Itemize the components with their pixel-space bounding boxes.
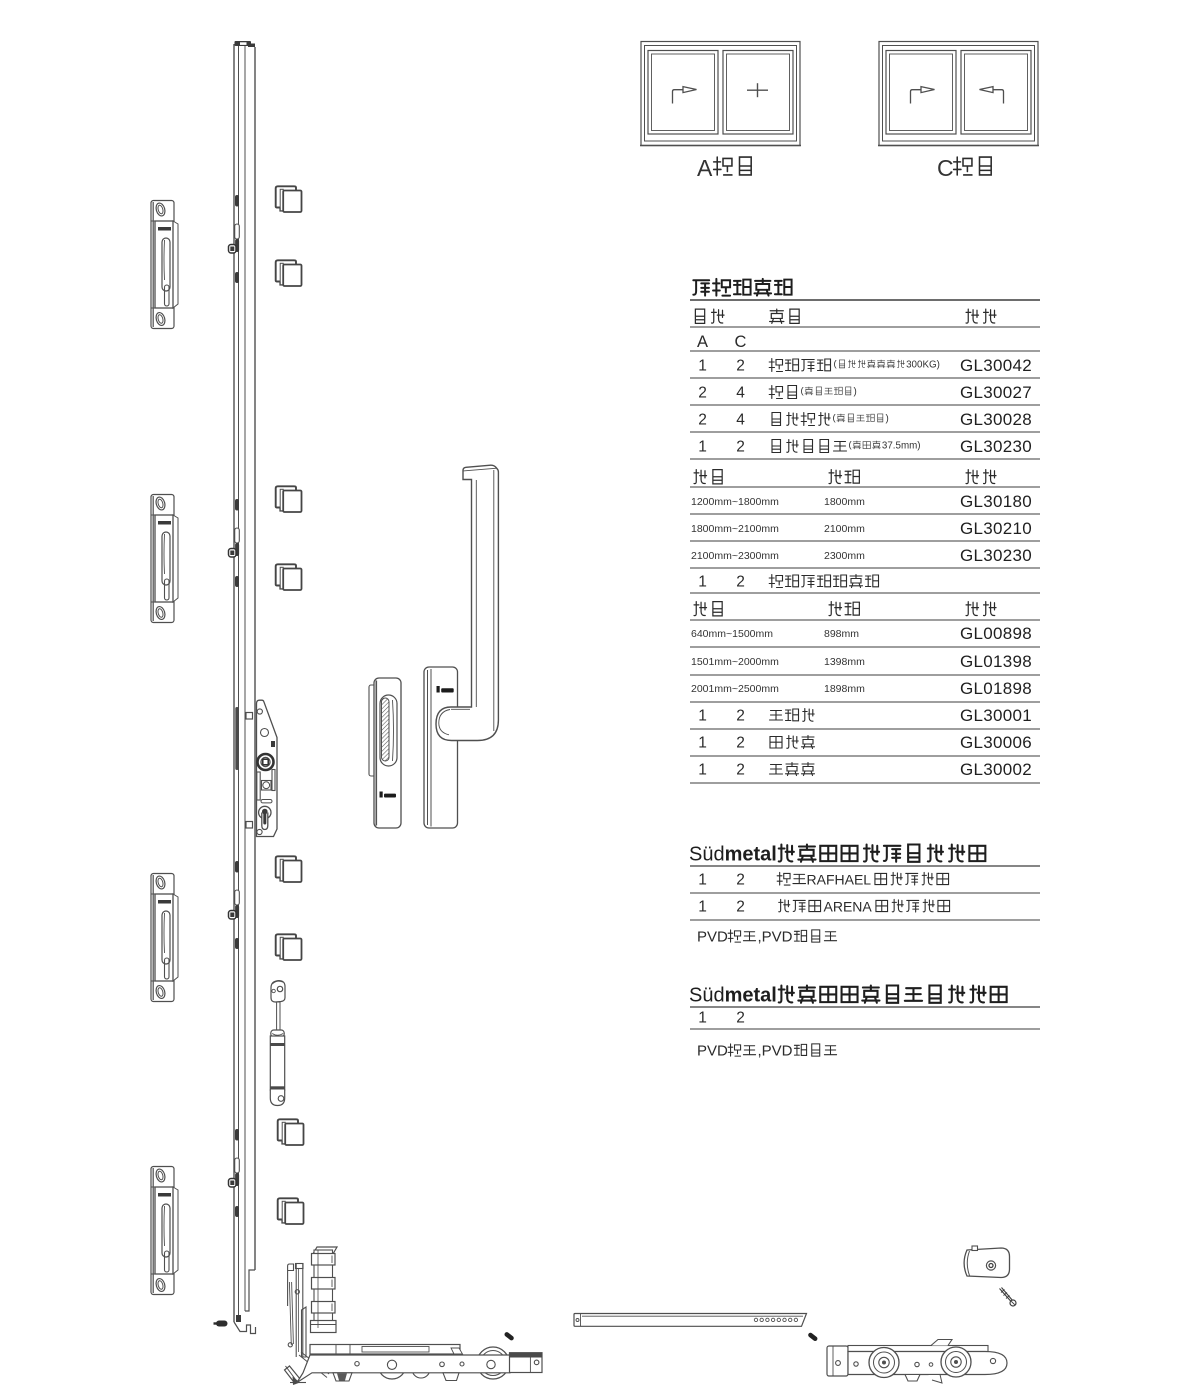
- svg-text:C: C: [937, 155, 954, 181]
- svg-text:1501mm~2000mm: 1501mm~2000mm: [691, 656, 779, 668]
- svg-text:C: C: [735, 333, 747, 351]
- svg-text:GL30230: GL30230: [960, 437, 1032, 456]
- svg-text:GL01898: GL01898: [960, 679, 1032, 698]
- svg-text:2: 2: [736, 1010, 745, 1027]
- svg-text:RAFHAEL: RAFHAEL: [807, 872, 872, 888]
- svg-text:GL01398: GL01398: [960, 652, 1032, 671]
- svg-text:2: 2: [698, 385, 707, 402]
- svg-text:2: 2: [736, 899, 745, 916]
- svg-text:2: 2: [736, 439, 745, 456]
- svg-text:1898mm: 1898mm: [824, 683, 865, 695]
- svg-text:2: 2: [736, 735, 745, 752]
- svg-text:GL30001: GL30001: [960, 706, 1032, 725]
- svg-text:GL30210: GL30210: [960, 519, 1032, 538]
- svg-text:Südmetal: Südmetal: [689, 844, 777, 866]
- svg-text:4: 4: [736, 412, 745, 429]
- svg-text:,PVD: ,PVD: [758, 929, 793, 946]
- svg-text:1398mm: 1398mm: [824, 656, 865, 668]
- svg-text:1: 1: [698, 899, 707, 916]
- svg-text:2100mm: 2100mm: [824, 523, 865, 535]
- svg-text:GL30042: GL30042: [960, 356, 1032, 375]
- svg-text:Südmetal: Südmetal: [689, 985, 777, 1007]
- svg-text:GL30230: GL30230: [960, 546, 1032, 565]
- svg-text:640mm~1500mm: 640mm~1500mm: [691, 628, 773, 640]
- svg-text:): ): [854, 387, 857, 398]
- svg-text:4: 4: [736, 385, 745, 402]
- svg-text:898mm: 898mm: [824, 628, 859, 640]
- svg-text:,PVD: ,PVD: [758, 1043, 793, 1060]
- svg-text:2: 2: [736, 574, 745, 591]
- svg-text:2: 2: [698, 412, 707, 429]
- svg-text:PVD: PVD: [697, 1043, 728, 1060]
- svg-text:A: A: [697, 333, 708, 351]
- svg-text:1800mm: 1800mm: [824, 496, 865, 508]
- svg-text:2: 2: [736, 762, 745, 779]
- svg-text:37.5mm): 37.5mm): [882, 441, 921, 452]
- svg-text:1200mm~1800mm: 1200mm~1800mm: [691, 496, 779, 508]
- svg-text:PVD: PVD: [697, 929, 728, 946]
- svg-text:2: 2: [736, 708, 745, 725]
- svg-text:1: 1: [698, 439, 707, 456]
- svg-text:GL00898: GL00898: [960, 624, 1032, 643]
- svg-text:GL30028: GL30028: [960, 410, 1032, 429]
- svg-text:2: 2: [736, 358, 745, 375]
- svg-text:1: 1: [698, 735, 707, 752]
- svg-text:2001mm~2500mm: 2001mm~2500mm: [691, 683, 779, 695]
- svg-text:GL30180: GL30180: [960, 492, 1032, 511]
- svg-text:1: 1: [698, 708, 707, 725]
- svg-text:GL30002: GL30002: [960, 760, 1032, 779]
- svg-text:1800mm~2100mm: 1800mm~2100mm: [691, 523, 779, 535]
- svg-text:1: 1: [698, 872, 707, 889]
- svg-text:GL30006: GL30006: [960, 733, 1032, 752]
- svg-text:1: 1: [698, 1010, 707, 1027]
- svg-text:300KG): 300KG): [906, 360, 940, 371]
- svg-text:2100mm~2300mm: 2100mm~2300mm: [691, 550, 779, 562]
- svg-text:ARENA: ARENA: [824, 899, 873, 915]
- svg-text:1: 1: [698, 762, 707, 779]
- svg-text:2: 2: [736, 872, 745, 889]
- svg-text:A: A: [697, 155, 713, 181]
- svg-text:1: 1: [698, 574, 707, 591]
- svg-text:1: 1: [698, 358, 707, 375]
- svg-text:2300mm: 2300mm: [824, 550, 865, 562]
- svg-text:): ): [886, 414, 889, 425]
- svg-text:GL30027: GL30027: [960, 383, 1032, 402]
